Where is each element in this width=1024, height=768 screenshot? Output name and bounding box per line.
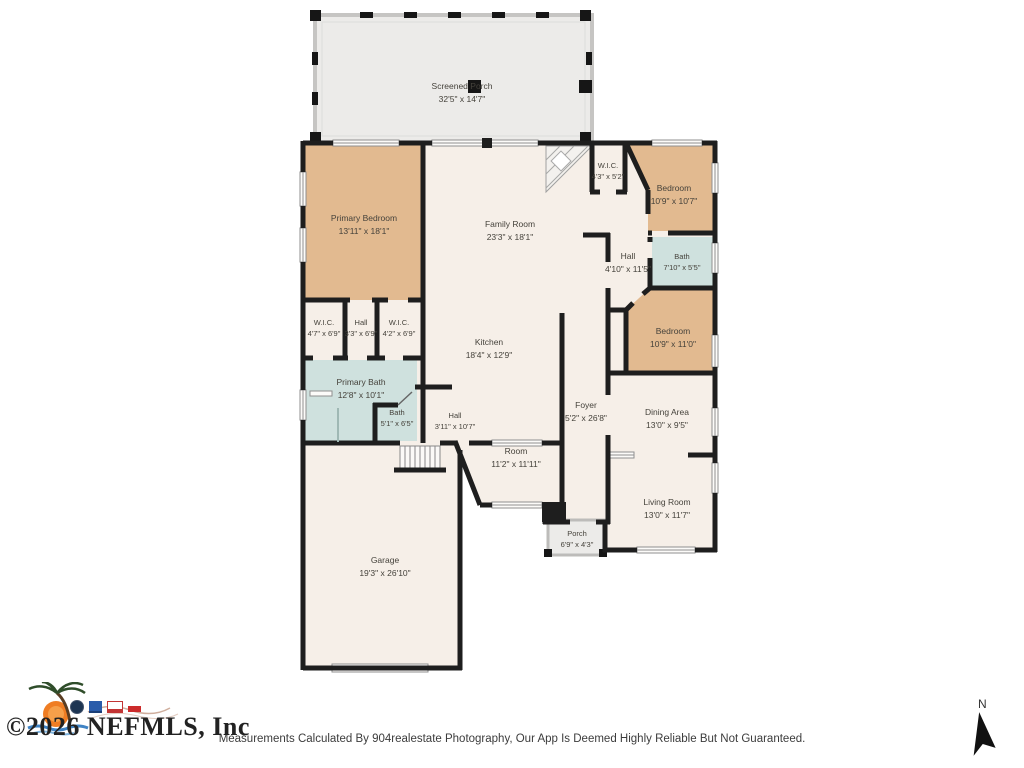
floorplan-drawing — [0, 0, 1024, 768]
room-label-bedroom-se: Bedroom10'9" x 11'0" — [650, 325, 696, 351]
mls-copyright: ©2026 NEFMLS, Inc — [6, 712, 250, 742]
room-label-wic-north: W.I.C.4'3" x 5'2" — [592, 161, 625, 182]
room-label-hall-east: Hall4'10" x 11'5" — [605, 250, 651, 276]
room-label-primary-bedroom: Primary Bedroom13'11" x 18'1" — [331, 212, 397, 238]
equal-housing-badge-icon — [128, 703, 141, 712]
room-label-hall-center: Hall3'3" x 6'9" — [345, 318, 378, 339]
room-label-room: Room11'2" x 11'11" — [491, 445, 540, 471]
room-label-bath-small: Bath5'1" x 6'5" — [381, 408, 414, 429]
room-label-wic-west: W.I.C.4'7" x 6'9" — [308, 318, 341, 339]
room-label-porch: Porch6'9" x 4'3" — [561, 529, 594, 550]
room-label-screened-porch: Screened Porch32'5" x 14'7" — [432, 80, 493, 106]
room-label-primary-bath: Primary Bath12'8" x 10'1" — [336, 376, 385, 402]
garage-steps — [400, 446, 440, 470]
compass-label: N — [978, 697, 987, 711]
floorplan-page: Screened Porch32'5" x 14'7" Primary Bedr… — [0, 0, 1024, 768]
room-label-bedroom-ne: Bedroom10'9" x 10'7" — [651, 182, 698, 208]
room-label-foyer: Foyer5'2" x 26'8" — [565, 399, 607, 425]
room-label-wic-center: W.I.C.4'2" x 6'9" — [383, 318, 416, 339]
room-label-living-room: Living Room13'0" x 11'7" — [643, 496, 690, 522]
room-label-dining-area: Dining Area13'0" x 9'5" — [645, 406, 689, 432]
room-label-bath-east: Bath7'10" x 5'5" — [664, 252, 701, 273]
room-label-family-room: Family Room23'3" x 18'1" — [485, 218, 535, 244]
room-label-garage: Garage19'3" x 26'10" — [359, 554, 410, 580]
room-label-hall-south: Hall3'11" x 10'7" — [435, 411, 476, 432]
room-label-kitchen: Kitchen18'4" x 12'9" — [466, 336, 513, 362]
screened-porch-area — [310, 10, 592, 143]
north-arrow-icon: N — [950, 690, 1010, 762]
